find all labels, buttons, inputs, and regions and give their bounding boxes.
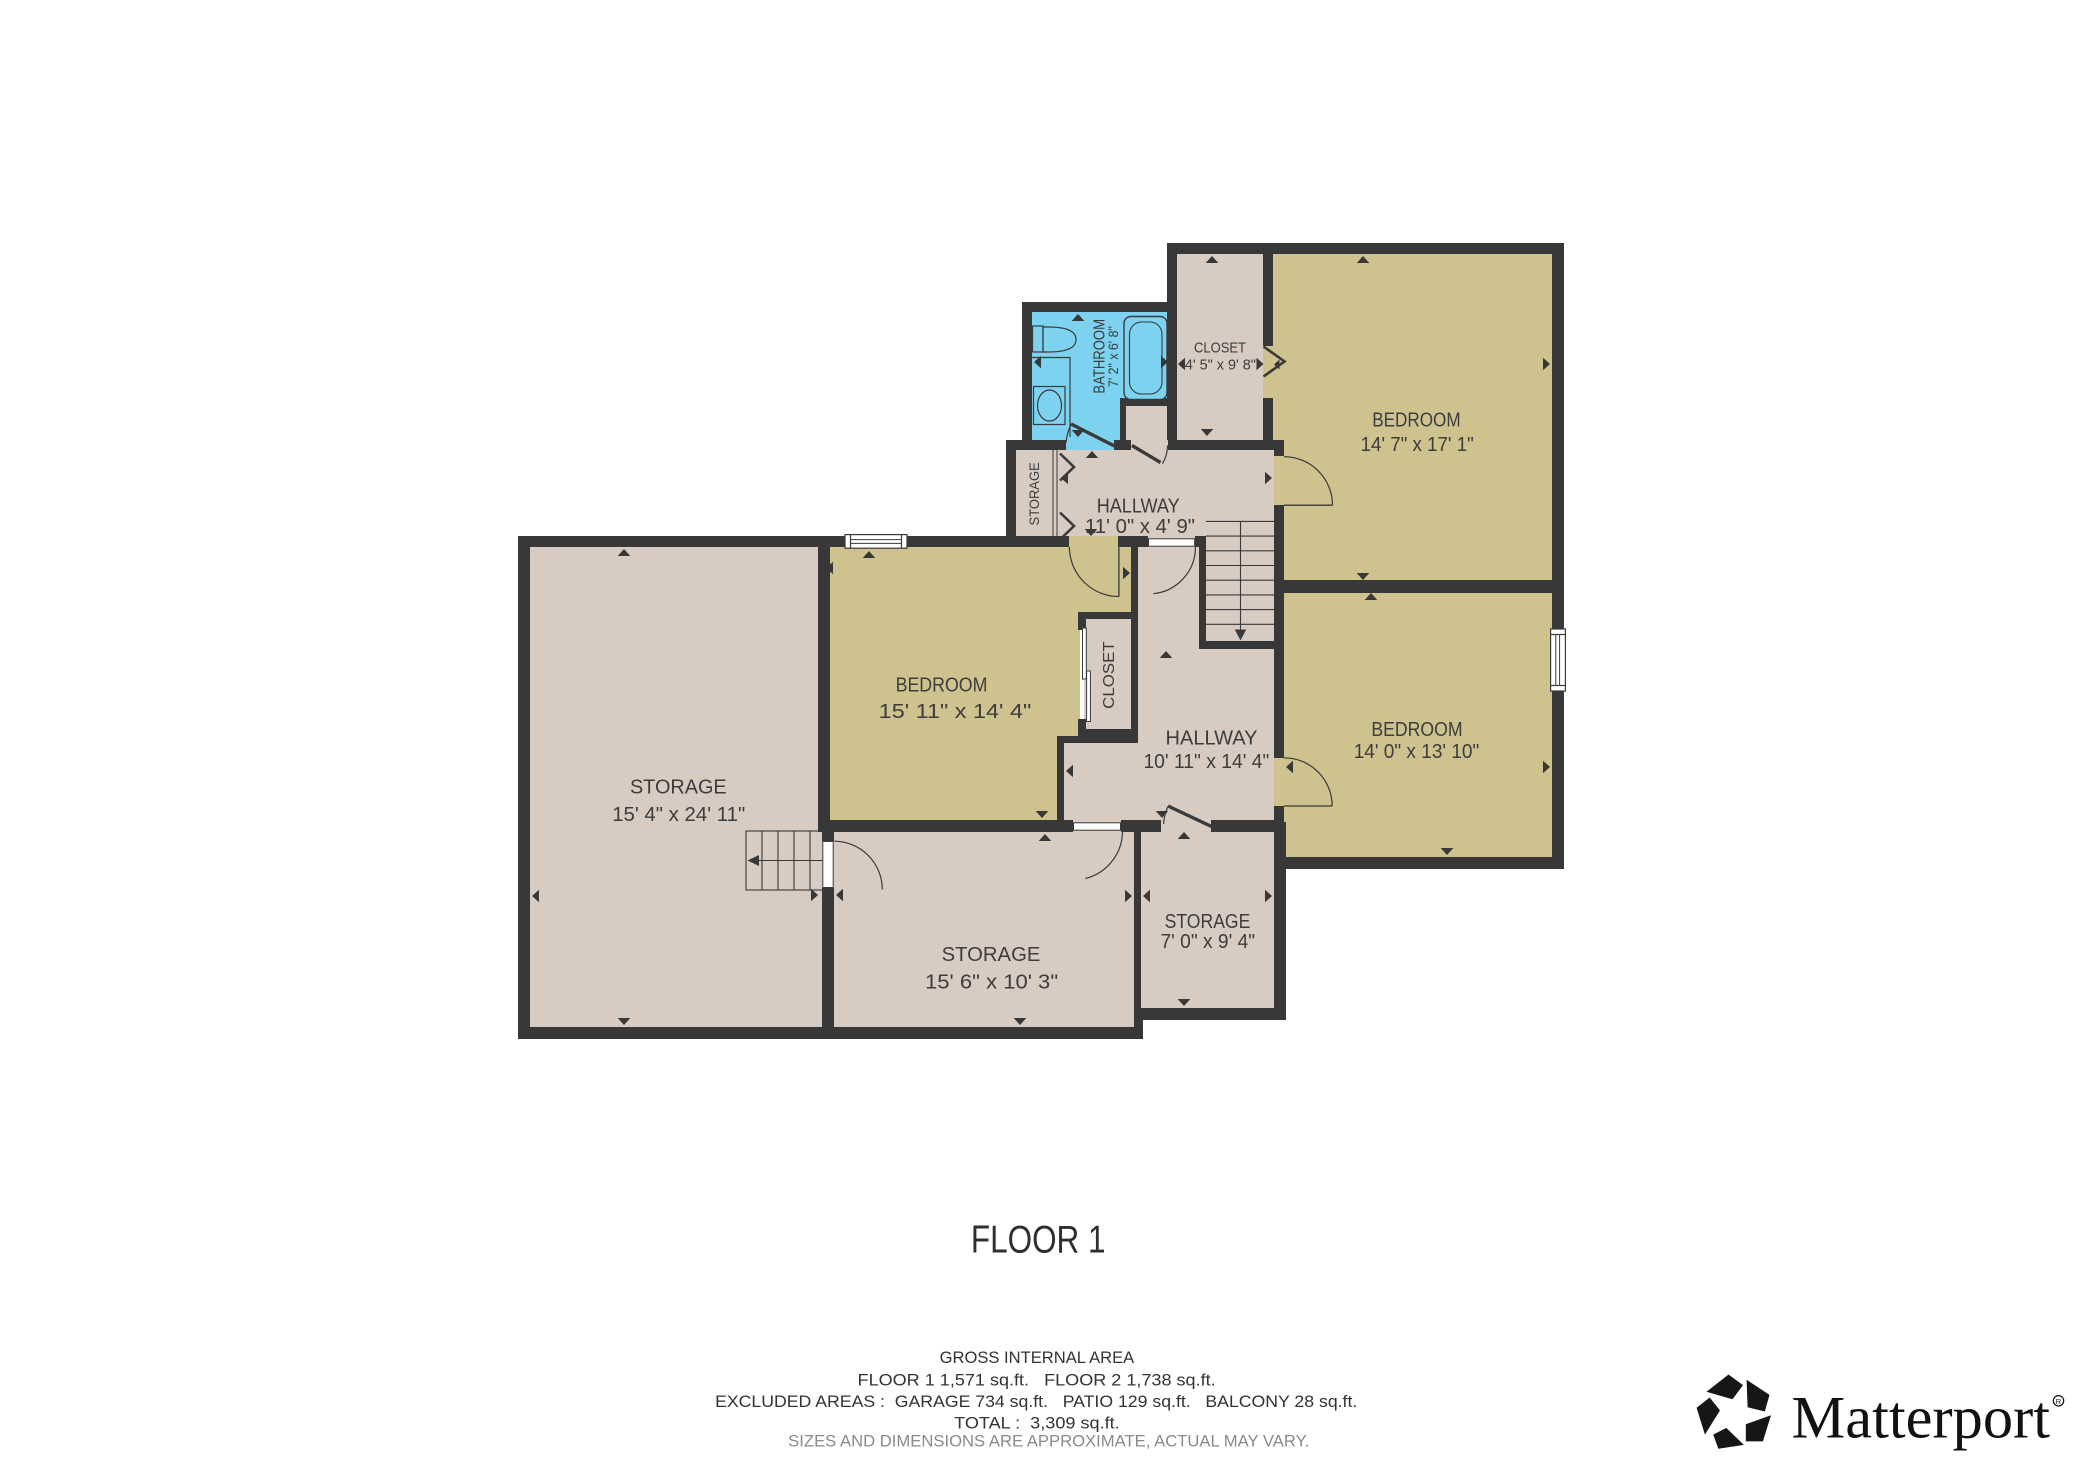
svg-text:7' 2" x 6' 8": 7' 2" x 6' 8" <box>1106 326 1121 387</box>
svg-text:11' 0" x 4' 9": 11' 0" x 4' 9" <box>1085 515 1195 538</box>
svg-text:4' 5" x 9' 8": 4' 5" x 9' 8" <box>1185 358 1256 374</box>
svg-text:STORAGE: STORAGE <box>942 943 1041 966</box>
svg-text:SIZES AND DIMENSIONS ARE APPRO: SIZES AND DIMENSIONS ARE APPROXIMATE, AC… <box>788 1432 1309 1451</box>
svg-text:HALLWAY: HALLWAY <box>1166 726 1258 749</box>
svg-text:TOTAL : 3,309 sq.ft.: TOTAL : 3,309 sq.ft. <box>954 1414 1120 1433</box>
svg-text:15' 11" x 14' 4": 15' 11" x 14' 4" <box>879 700 1032 723</box>
svg-text:R: R <box>2056 1397 2062 1406</box>
svg-text:STORAGE: STORAGE <box>630 776 727 799</box>
svg-text:15' 6" x 10' 3": 15' 6" x 10' 3" <box>925 971 1058 994</box>
svg-text:BEDROOM: BEDROOM <box>1372 409 1460 432</box>
svg-text:15' 4" x 24' 11": 15' 4" x 24' 11" <box>612 803 745 826</box>
svg-text:FLOOR 1 1,571 sq.ft. FLOOR 2: FLOOR 1 1,571 sq.ft. FLOOR 2 1,738 sq.ft… <box>858 1370 1216 1389</box>
svg-text:CLOSET: CLOSET <box>1101 641 1118 709</box>
svg-text:BEDROOM: BEDROOM <box>1371 718 1462 741</box>
svg-text:EXCLUDED AREAS : GARAGE 734 s: EXCLUDED AREAS : GARAGE 734 sq.ft. PATIO… <box>715 1392 1357 1411</box>
svg-text:14' 7" x 17' 1": 14' 7" x 17' 1" <box>1361 433 1474 456</box>
svg-text:STORAGE: STORAGE <box>1026 462 1042 525</box>
svg-text:14' 0" x 13' 10": 14' 0" x 13' 10" <box>1354 740 1480 763</box>
svg-text:GROSS INTERNAL AREA: GROSS INTERNAL AREA <box>940 1348 1136 1367</box>
svg-text:CLOSET: CLOSET <box>1194 341 1246 357</box>
svg-text:BEDROOM: BEDROOM <box>896 674 988 697</box>
svg-text:Matterport: Matterport <box>1792 1384 2051 1451</box>
svg-text:7' 0" x 9' 4": 7' 0" x 9' 4" <box>1161 930 1256 953</box>
svg-text:FLOOR 1: FLOOR 1 <box>971 1219 1106 1262</box>
svg-text:10' 11" x 14' 4": 10' 11" x 14' 4" <box>1143 750 1269 773</box>
